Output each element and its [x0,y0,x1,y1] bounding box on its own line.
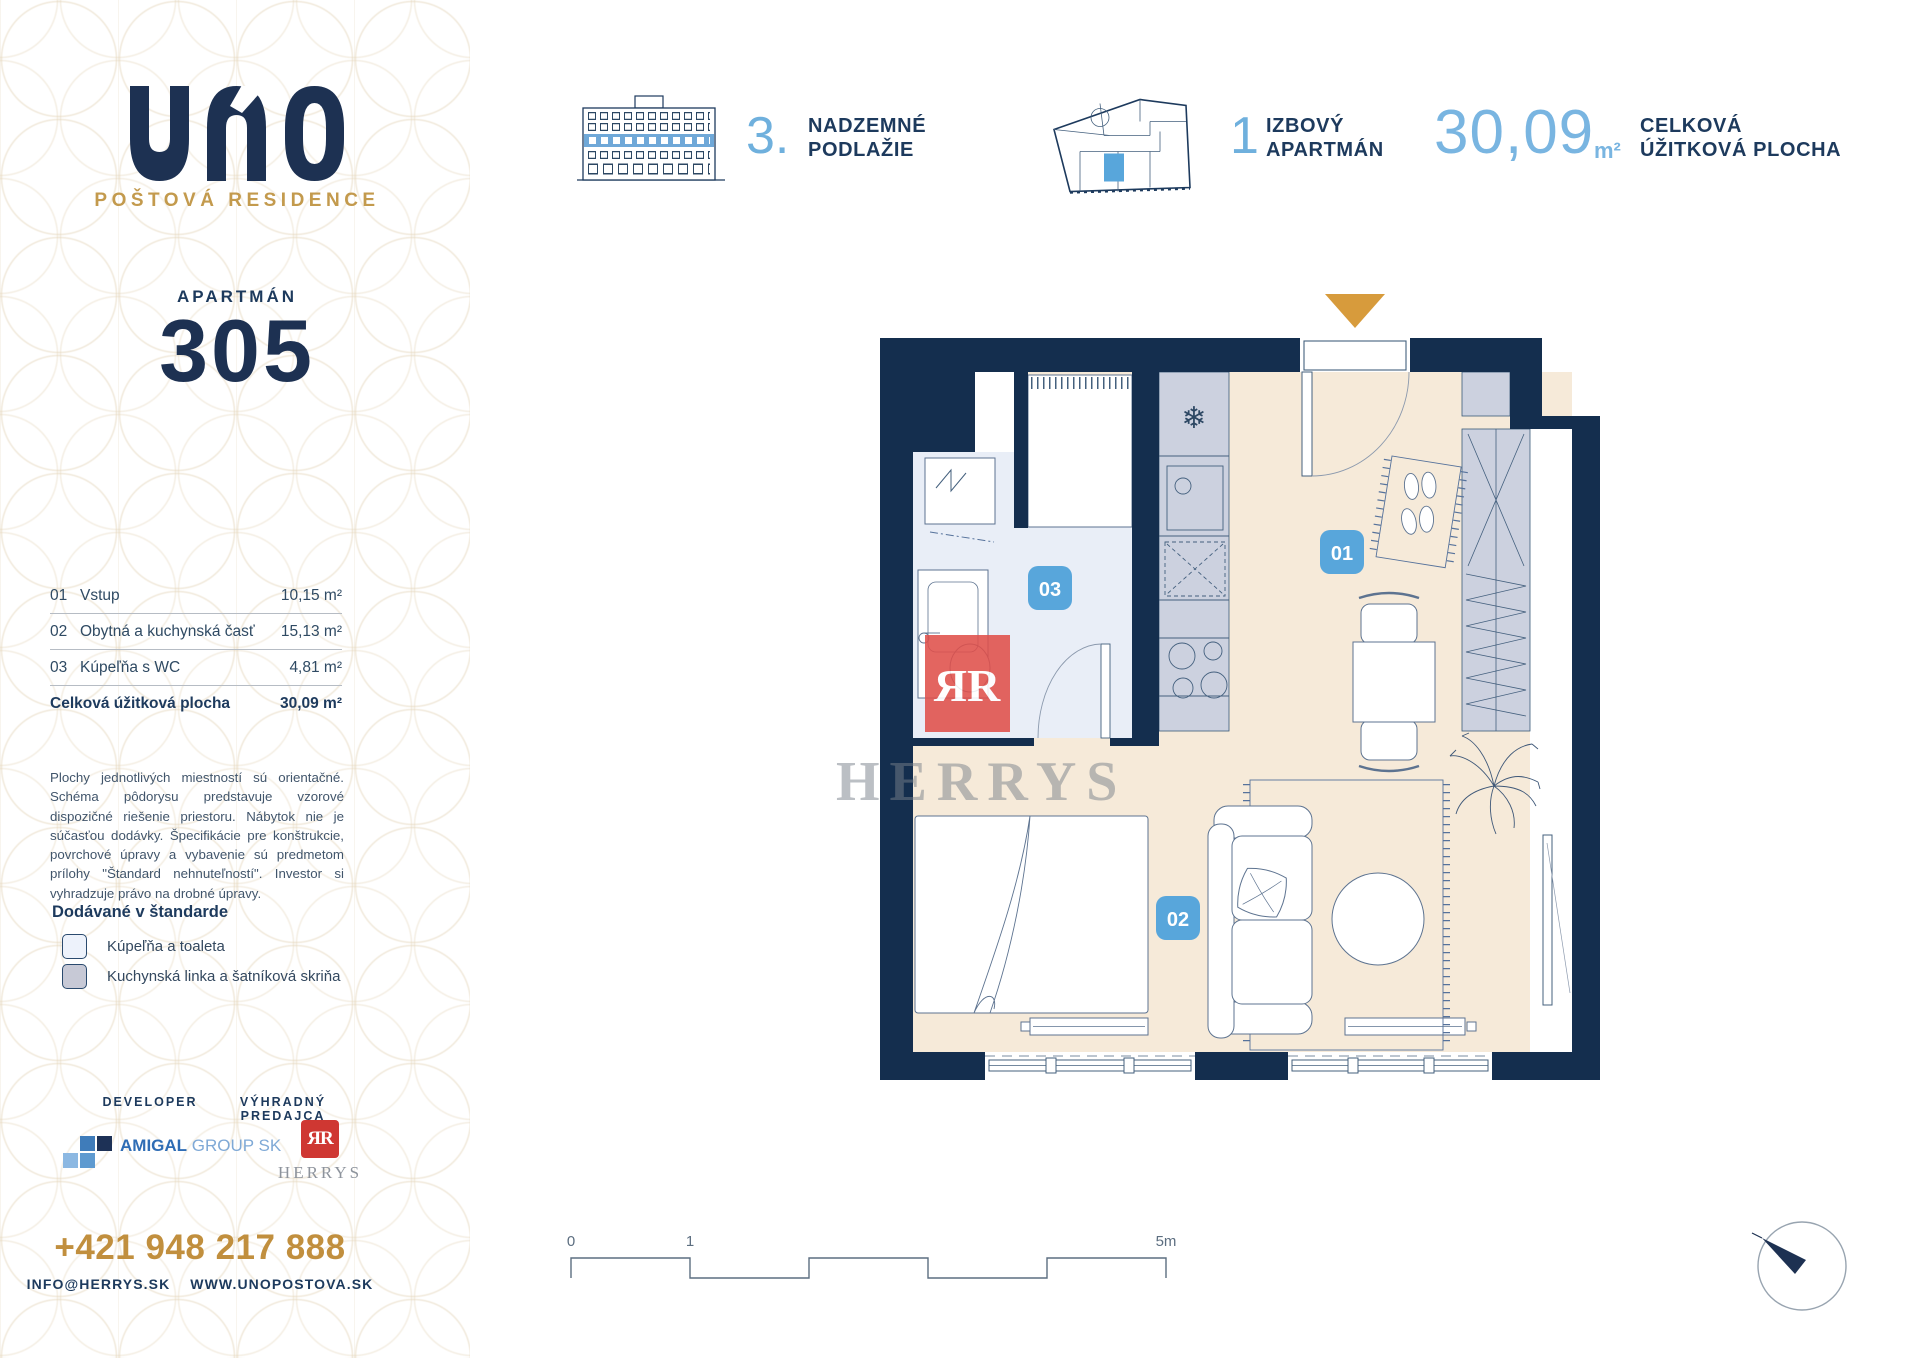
svg-text:03: 03 [1039,579,1061,601]
svg-text:ЯR: ЯR [934,660,1001,711]
building-elevation-icon [575,88,727,188]
legend-item-kitchen: Kuchynská linka a šatníková skriňa [62,963,340,989]
seller-label: VÝHRADNÝ PREDAJCA [213,1095,353,1123]
entrance-arrow-icon [1325,294,1385,328]
svg-text:0: 0 [567,1233,575,1250]
room-code: 03 [50,659,80,677]
room-code: 01 [50,587,80,605]
total-label: Celková úžitková plocha [50,695,280,713]
table-row: 02 Obytná a kuchynská časť 15,13 m² [50,614,342,650]
developer-brand-suffix: GROUP SK [187,1136,281,1155]
room-name: Vstup [80,587,281,605]
amigal-square [97,1136,112,1151]
developer-brand: AMIGAL [120,1136,187,1155]
shower-cabinet [1028,375,1132,527]
sofa [1208,806,1312,1038]
table-total-row: Celková úžitková plocha 30,09 m² [50,686,342,721]
unit-type-line2: APARTMÁN [1266,138,1384,162]
scale-bar: 0 1 5m [560,1228,1190,1288]
total-area-label: CELKOVÁ ÚŽITKOVÁ PLOCHA [1640,114,1841,163]
legend-label: Kúpeľňa a toaleta [107,938,225,955]
legend-title: Dodávané v štandarde [52,903,228,922]
floor-plan-drawing: ❄ [880,288,1600,1082]
room-area: 4,81 m² [289,659,342,677]
table-row: 03 Kúpeľňa s WC 4,81 m² [50,650,342,686]
unit-type-line1: IZBOVÝ [1266,114,1384,138]
legend-item-bathroom: Kúpeľňa a toaleta [62,933,225,959]
amigal-square [63,1153,78,1168]
total-area-line1: CELKOVÁ [1640,114,1841,138]
legend-label: Kuchynská linka a šatníková skriňa [107,968,340,985]
legend-swatch-bathroom [62,934,87,959]
floor-label-line1: NADZEMNÉ [808,114,926,138]
contact-links: INFO@HERRYS.SK WWW.UNOPOSTOVA.SK [30,1276,370,1292]
svg-text:01: 01 [1331,543,1353,565]
apartment-number: 305 [57,300,417,402]
room-badge-entry: 01 [1320,530,1364,574]
svg-text:02: 02 [1167,909,1189,931]
tv [1543,835,1552,1005]
svg-text:5m: 5m [1156,1233,1177,1250]
compass-icon [1744,1212,1868,1336]
floor-label: NADZEMNÉ PODLAŽIE [808,114,926,163]
window [985,1052,1195,1080]
herrys-watermark-mark: ЯR [925,635,1010,732]
email-link[interactable]: INFO@HERRYS.SK [27,1276,171,1292]
room-name: Kúpeľňa s WC [80,659,289,677]
room-name: Obytná a kuchynská časť [80,623,281,641]
room-code: 02 [50,623,80,641]
herrys-logo-icon: ЯR [301,1120,339,1158]
total-area: 30,09 m² [280,695,342,713]
amigal-square [80,1136,95,1151]
floor-overview-icon [1040,90,1198,198]
total-area-unit: m² [1594,138,1621,164]
total-area-line2: ÚŽITKOVÁ PLOCHA [1640,138,1841,162]
room-badge-living: 02 [1156,896,1200,940]
unit-type-number: 1 [1230,110,1259,162]
wall-niche [975,372,1014,452]
brand-subtitle: POŠTOVÁ RESIDENCE [57,190,417,212]
herrys-logo-name: HERRYS [255,1163,385,1183]
disclaimer-text: Plochy jednotlivých miestností sú orient… [50,768,344,903]
svg-text:1: 1 [686,1233,694,1250]
floor-number: 3. [746,110,789,162]
room-badge-bathroom: 03 [1028,566,1072,610]
flyer-page: POŠTOVÁ RESIDENCE APARTMÁN 305 01 Vstup … [0,0,1920,1358]
website-link[interactable]: WWW.UNOPOSTOVA.SK [190,1276,373,1292]
room-area: 10,15 m² [281,587,342,605]
floor-label-line2: PODLAŽIE [808,138,926,162]
herrys-watermark-text: HERRYS [836,750,1127,814]
amigal-square [80,1153,95,1168]
room-areas-table: 01 Vstup 10,15 m² 02 Obytná a kuchynská … [50,578,342,721]
legend-swatch-kitchen [62,964,87,989]
bathroom-door [1101,644,1110,738]
window [1288,1052,1492,1080]
uno-logo-icon [130,86,344,181]
table-row: 01 Vstup 10,15 m² [50,578,342,614]
washing-machine [925,458,995,524]
phone-number[interactable]: +421 948 217 888 [30,1228,370,1268]
room-area: 15,13 m² [281,623,342,641]
fridge-snowflake-icon: ❄ [1181,402,1206,435]
bed [915,816,1148,1013]
coffee-table [1332,873,1424,965]
developer-label: DEVELOPER [90,1095,210,1109]
total-area-value: 30,09 [1434,102,1594,164]
unit-type-label: IZBOVÝ APARTMÁN [1266,114,1384,163]
